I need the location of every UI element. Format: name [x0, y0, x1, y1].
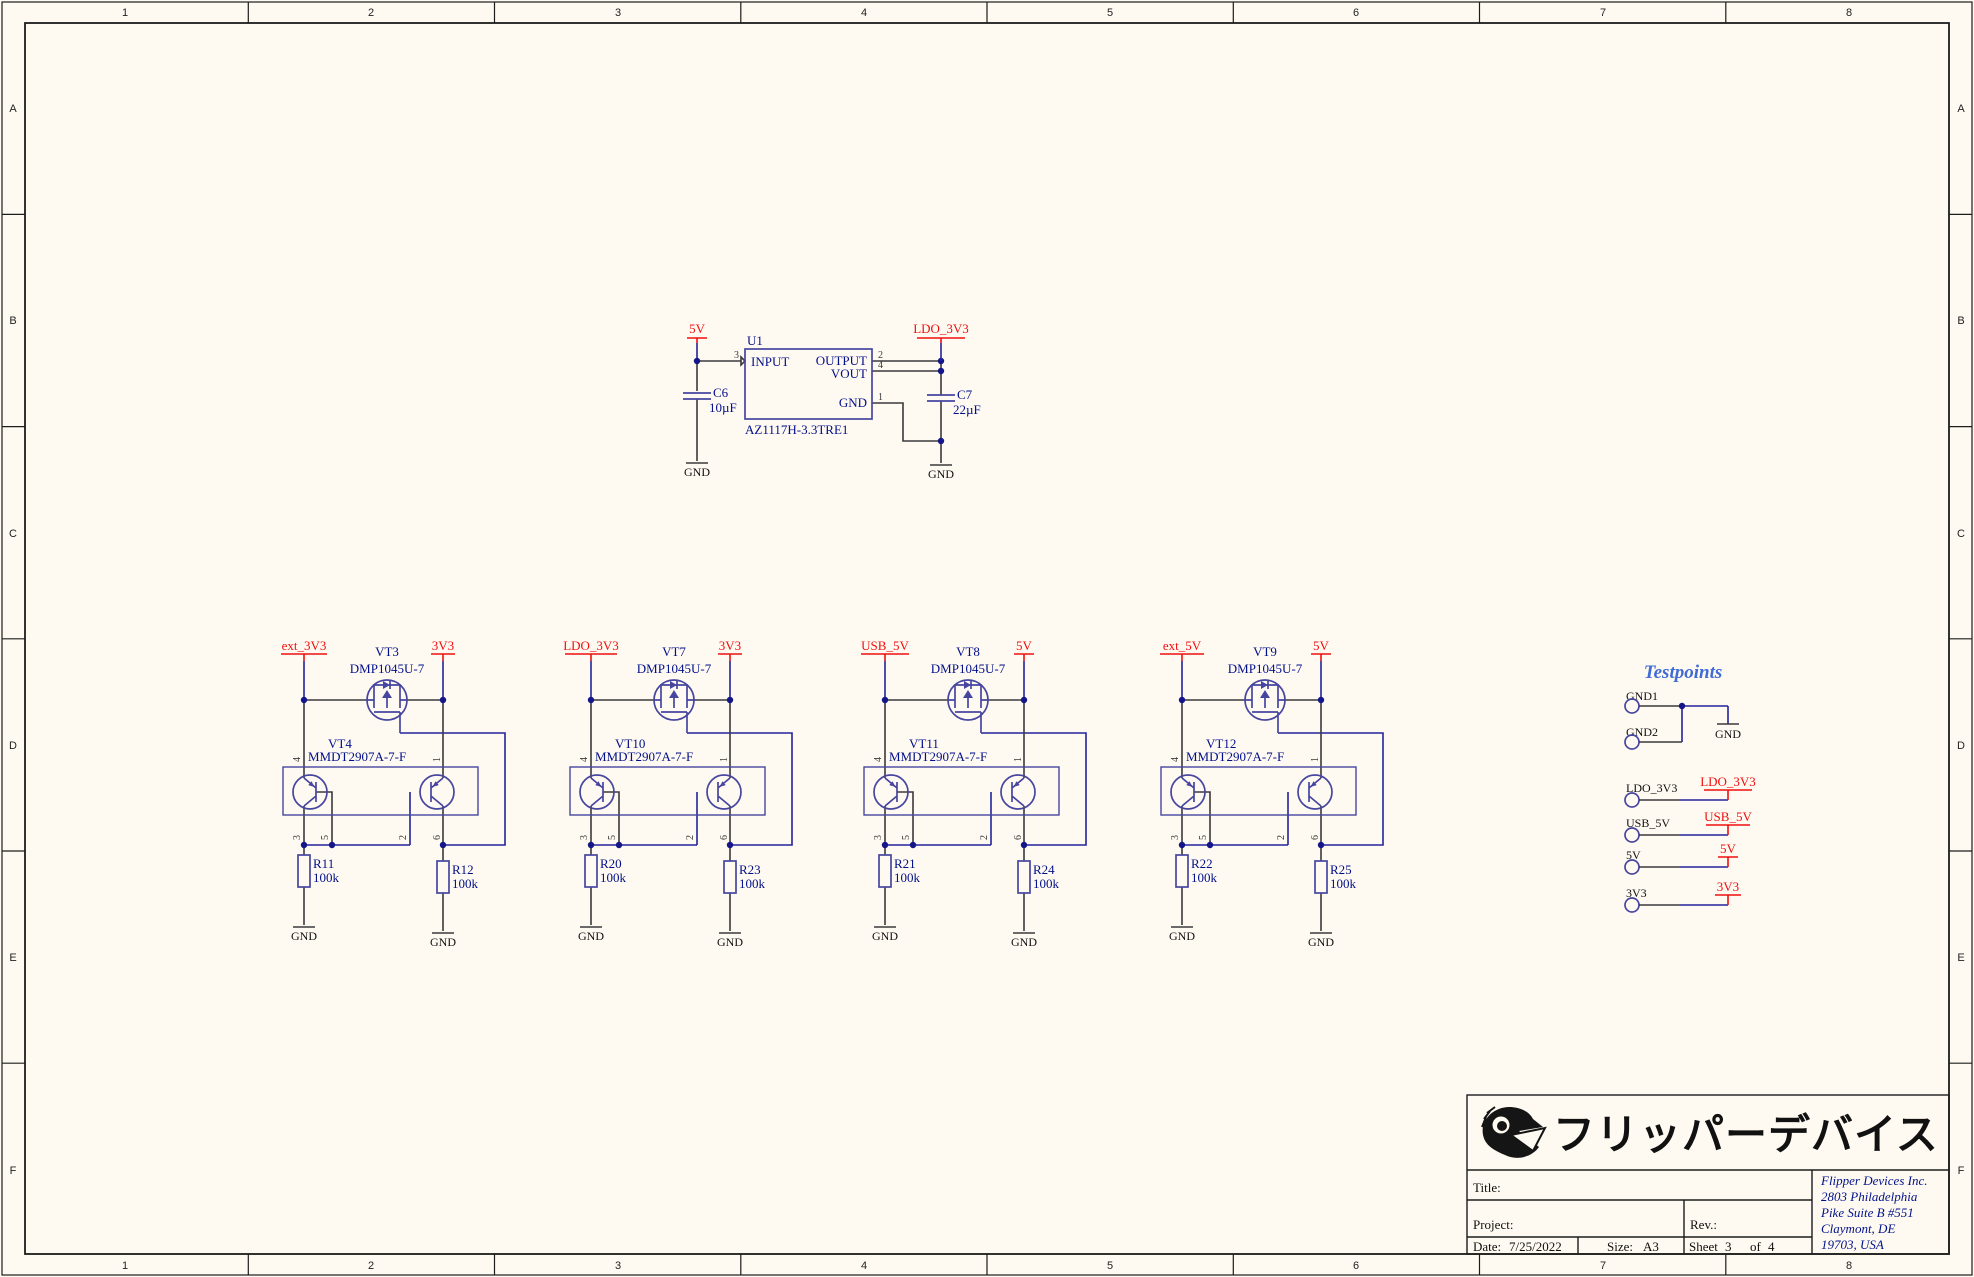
power-flag	[1715, 895, 1741, 905]
col-label: 2	[368, 7, 374, 19]
mosfet-arrow	[1260, 690, 1270, 698]
body-diode	[670, 681, 677, 689]
row-label: C	[1957, 528, 1965, 540]
row-labels-right: A B C D E F	[1957, 103, 1965, 1177]
bjt-left-symbol	[885, 778, 897, 806]
logo-text: フリッパーデバイス	[1553, 1111, 1939, 1158]
junction-dot	[329, 842, 335, 848]
resistor-ref: R12	[452, 862, 474, 877]
power-flag	[431, 654, 455, 661]
pin-number: 4	[579, 757, 590, 762]
junction-dot	[1318, 842, 1324, 848]
tp-row-3v3: 3V3 3V3	[1625, 879, 1741, 912]
gnd-label: GND	[684, 465, 710, 479]
power-flag	[1704, 790, 1752, 800]
resistor-value: 100k	[739, 876, 766, 891]
col-label: 5	[1107, 1260, 1113, 1272]
row-label: D	[1957, 740, 1965, 752]
row-label: B	[1957, 315, 1964, 327]
company-address: Flipper Devices Inc. 2803 Philadelphia P…	[1820, 1173, 1927, 1252]
resistor-left	[1176, 855, 1188, 887]
col-label: 6	[1353, 1260, 1359, 1272]
date-label: Date:	[1473, 1239, 1501, 1254]
power-flag	[1706, 825, 1750, 835]
pin-number: 1	[1013, 757, 1024, 762]
dual-bjt-body	[1161, 767, 1356, 815]
resistor-right	[437, 861, 449, 893]
net-label: 5V	[1016, 638, 1033, 653]
tp-row-usb5v: USB_5V USB_5V	[1625, 809, 1752, 842]
project-label: Project:	[1473, 1217, 1513, 1232]
col-label: 3	[615, 1260, 621, 1272]
mosfet-ref: VT9	[1253, 644, 1277, 659]
net-label: 5V	[1313, 638, 1330, 653]
column-ticks	[248, 2, 1726, 1275]
resistor-right	[1315, 861, 1327, 893]
pin-number: 4	[292, 757, 303, 762]
sheet-number: 3	[1725, 1239, 1732, 1254]
gnd-symbols	[293, 927, 454, 933]
dual-bjt-body	[283, 767, 478, 815]
address-line: 19703, USA	[1821, 1237, 1884, 1252]
junction-dot	[1679, 703, 1685, 709]
gnd-label: GND	[872, 929, 898, 943]
pin-number: 5	[1198, 835, 1209, 840]
pin-number: 2	[685, 835, 696, 840]
pin-number: 1	[878, 392, 883, 403]
pin-number: 3	[579, 835, 590, 840]
mosfet-arrow	[963, 690, 973, 698]
mosfet-part: DMP1045U-7	[931, 661, 1006, 676]
junction-dot	[1318, 697, 1324, 703]
tp-label: GND2	[1626, 725, 1658, 739]
col-label: 6	[1353, 7, 1359, 19]
dolphin-pupil	[1497, 1121, 1507, 1131]
gnd-symbols	[580, 927, 741, 933]
title-label: Title:	[1473, 1180, 1501, 1195]
net-label-5v: 5V	[689, 321, 706, 336]
mosfet-arrow	[382, 690, 392, 698]
flipper-dolphin-logo	[1482, 1107, 1545, 1158]
pin-number: 3	[292, 835, 303, 840]
bjt-part: MMDT2907A-7-F	[889, 749, 987, 764]
testpoints-section: Testpoints GND1 GND GND2 LDO_3V3 LDO_3V3…	[1625, 662, 1756, 912]
junction-dot	[301, 697, 307, 703]
row-label: F	[1958, 1165, 1965, 1177]
resistor-ref: R25	[1330, 862, 1352, 877]
mosfet-part: DMP1045U-7	[350, 661, 425, 676]
size-label: Size:	[1607, 1239, 1633, 1254]
col-label: 7	[1600, 1260, 1606, 1272]
testpoint-pad	[1625, 860, 1639, 874]
resistor-right	[1018, 861, 1030, 893]
bjt-left-symbol	[304, 778, 316, 806]
junction-dot	[727, 697, 733, 703]
power-flag	[917, 338, 965, 343]
pin-number: 6	[1310, 835, 1321, 840]
bjt-right-symbol	[1309, 778, 1321, 806]
resistor-ref: R20	[600, 856, 622, 871]
junction-dot	[1021, 842, 1027, 848]
of-label: of	[1750, 1239, 1762, 1254]
mosfet-part: DMP1045U-7	[1228, 661, 1303, 676]
resistor-left	[879, 855, 891, 887]
col-label: 1	[122, 1260, 128, 1272]
dual-bjt-body	[864, 767, 1059, 815]
bjt-right-symbol	[718, 778, 730, 806]
regulator-ref: U1	[747, 333, 763, 348]
power-switch-group-3: USB_5V 5V VT8 DMP1045U-7 VT11 MMDT2907A-…	[861, 638, 1086, 949]
net-label-ldo3v3: LDO_3V3	[913, 321, 969, 336]
col-label: 4	[861, 7, 867, 19]
bjt-part: MMDT2907A-7-F	[595, 749, 693, 764]
gnd-symbols	[874, 927, 1035, 933]
pin-name-gnd: GND	[839, 395, 867, 410]
junction-dot	[1179, 697, 1185, 703]
junction-dot	[616, 842, 622, 848]
address-line: Flipper Devices Inc.	[1820, 1173, 1927, 1188]
sheet-label: Sheet	[1689, 1239, 1718, 1254]
resistor-ref: R23	[739, 862, 761, 877]
gnd-label: GND	[430, 935, 456, 949]
regulator-part: AZ1117H-3.3TRE1	[745, 422, 848, 437]
gnd-symbols	[1171, 927, 1332, 933]
resistor-value: 100k	[600, 870, 627, 885]
resistor-ref: R24	[1033, 862, 1055, 877]
testpoint-pad	[1625, 793, 1639, 807]
bjt-right	[1001, 775, 1035, 809]
pin-name-vout: VOUT	[831, 366, 867, 381]
row-label: A	[1957, 103, 1965, 115]
rev-label: Rev.:	[1690, 1217, 1717, 1232]
pin-number: 2	[398, 835, 409, 840]
power-flag	[861, 654, 909, 661]
junction-dot	[1021, 697, 1027, 703]
sheet-total: 4	[1768, 1239, 1775, 1254]
junction-dot	[694, 358, 700, 364]
pin-number: 5	[901, 835, 912, 840]
tp-label: GND1	[1626, 689, 1658, 703]
size-value: A3	[1643, 1239, 1659, 1254]
row-labels-left: A B C D E F	[9, 103, 17, 1177]
power-switch-group-1: ext_3V3 3V3 VT3 DMP1045U-7 VT4 MMDT2907A…	[281, 638, 505, 949]
tp-row-5v: 5V 5V	[1625, 841, 1738, 874]
pin-number: 6	[719, 835, 730, 840]
mosfet-ref: VT3	[375, 644, 399, 659]
col-label: 2	[368, 1260, 374, 1272]
testpoint-pad	[1625, 828, 1639, 842]
pin-number: 6	[432, 835, 443, 840]
c6-value: 10µF	[709, 400, 737, 415]
gnd-label: GND	[1011, 935, 1037, 949]
power-flag	[1014, 654, 1034, 661]
resistor-value: 100k	[452, 876, 479, 891]
power-flag	[281, 654, 327, 661]
power-flag	[718, 654, 742, 661]
pin-number: 4	[878, 360, 883, 371]
row-label: E	[1957, 952, 1964, 964]
address-line: Pike Suite B #551	[1820, 1205, 1914, 1220]
bjt-part: MMDT2907A-7-F	[308, 749, 406, 764]
col-label: 3	[615, 7, 621, 19]
c7-value: 22µF	[953, 402, 981, 417]
gnd-label: GND	[1715, 727, 1741, 741]
pin-number: 1	[1310, 757, 1321, 762]
resistor-left	[298, 855, 310, 887]
pin-number: 1	[432, 757, 443, 762]
gnd-label: GND	[1169, 929, 1195, 943]
net-label: 5V	[1720, 841, 1737, 856]
junction-dot	[301, 842, 307, 848]
row-label: C	[9, 528, 17, 540]
col-label: 8	[1846, 1260, 1852, 1272]
resistor-value: 100k	[1033, 876, 1060, 891]
junction-dot	[938, 368, 944, 374]
mosfet-ref: VT8	[956, 644, 980, 659]
testpoints-title: Testpoints	[1644, 662, 1723, 683]
mosfet-ref: VT7	[662, 644, 686, 659]
mosfet-part: DMP1045U-7	[637, 661, 712, 676]
address-line: 2803 Philadelphia	[1821, 1189, 1918, 1204]
mosfet-internals	[1245, 681, 1285, 733]
bjt-right	[420, 775, 454, 809]
bjt-right-symbol	[431, 778, 443, 806]
power-switch-group-2: LDO_3V3 3V3 VT7 DMP1045U-7 VT10 MMDT2907…	[563, 638, 792, 949]
pin-number: 4	[873, 757, 884, 762]
capacitor-c6	[683, 393, 711, 399]
net-label: USB_5V	[861, 638, 909, 653]
junction-dot	[588, 697, 594, 703]
junction-dot	[882, 842, 888, 848]
bjt-right	[1298, 775, 1332, 809]
gnd-symbols	[686, 463, 952, 465]
col-label: 7	[1600, 7, 1606, 19]
pin-number: 2	[979, 835, 990, 840]
net-label: LDO_3V3	[1700, 774, 1756, 789]
net-label: ext_3V3	[282, 638, 327, 653]
gnd-label: GND	[928, 467, 954, 481]
c7-ref: C7	[957, 387, 973, 402]
bjt-part: MMDT2907A-7-F	[1186, 749, 1284, 764]
junction-dot	[588, 842, 594, 848]
junction-dot	[440, 842, 446, 848]
pin-number: 4	[1170, 757, 1181, 762]
gnd-label: GND	[717, 935, 743, 949]
col-label: 1	[122, 7, 128, 19]
junction-dot	[938, 438, 944, 444]
mosfet-internals	[948, 681, 988, 733]
bjt-right	[707, 775, 741, 809]
bjt-left-symbol	[1182, 778, 1194, 806]
net-label: USB_5V	[1704, 809, 1752, 824]
resistor-value: 100k	[1330, 876, 1357, 891]
resistor-ref: R11	[313, 856, 334, 871]
junction-dot	[1207, 842, 1213, 848]
tp-row-ldo3v3: LDO_3V3 LDO_3V3	[1625, 774, 1756, 807]
row-label: E	[9, 952, 16, 964]
resistor-ref: R22	[1191, 856, 1213, 871]
title-block: フリッパーデバイス Title: Project: Rev.: Date: 7/…	[1467, 1095, 1949, 1254]
junction-dot	[882, 697, 888, 703]
resistor-value: 100k	[894, 870, 921, 885]
mosfet-internals	[654, 681, 694, 733]
row-label: D	[9, 740, 17, 752]
power-flag	[1160, 654, 1204, 661]
testpoint-pad	[1625, 898, 1639, 912]
ldo-regulator-circuit: 5V U1 INPUT OUTPUT VOUT GND 3 2 4 1 AZ11…	[683, 321, 981, 481]
junction-dot	[1179, 842, 1185, 848]
pin-number: 3	[873, 835, 884, 840]
bjt-left-symbol	[591, 778, 603, 806]
pin-number: 2	[1276, 835, 1287, 840]
resistor-value: 100k	[1191, 870, 1218, 885]
body-diode	[383, 681, 390, 689]
net-label: 3V3	[1717, 879, 1739, 894]
mosfet-internals	[367, 681, 407, 733]
row-label: A	[9, 103, 17, 115]
date-value: 7/25/2022	[1509, 1239, 1562, 1254]
row-label: F	[10, 1165, 17, 1177]
power-flag	[1311, 654, 1331, 661]
net-label: ext_5V	[1163, 638, 1202, 653]
schematic-canvas: 1 2 3 4 5 6 7 8 1 2 3 4 5 6 7 8 A B C D …	[0, 0, 1974, 1277]
schematic-sheet: 1 2 3 4 5 6 7 8 1 2 3 4 5 6 7 8 A B C D …	[0, 0, 1974, 1277]
body-diode	[964, 681, 971, 689]
resistor-left	[585, 855, 597, 887]
col-label: 8	[1846, 7, 1852, 19]
junction-dot	[910, 842, 916, 848]
gnd-label: GND	[291, 929, 317, 943]
pin-number: 5	[320, 835, 331, 840]
body-diode	[1261, 681, 1268, 689]
resistor-ref: R21	[894, 856, 916, 871]
net-label: 3V3	[432, 638, 454, 653]
gnd-label: GND	[578, 929, 604, 943]
capacitor-c7	[927, 395, 955, 401]
gnd-label: GND	[1308, 935, 1334, 949]
bjt-right-symbol	[1012, 778, 1024, 806]
power-flag	[565, 654, 617, 661]
power-flag	[687, 338, 707, 343]
col-label: 4	[861, 1260, 867, 1272]
pin-number: 3	[734, 350, 739, 361]
mosfet-arrow	[669, 690, 679, 698]
pin-number: 1	[719, 757, 730, 762]
power-flag	[1718, 857, 1738, 867]
row-label: B	[9, 315, 16, 327]
resistor-value: 100k	[313, 870, 340, 885]
pin-number: 5	[607, 835, 618, 840]
c6-ref: C6	[713, 385, 729, 400]
net-label: LDO_3V3	[563, 638, 619, 653]
junction-dot	[440, 697, 446, 703]
pin-number: 3	[1170, 835, 1181, 840]
pin-name-input: INPUT	[751, 354, 789, 369]
junction-dot	[727, 842, 733, 848]
col-label: 5	[1107, 7, 1113, 19]
dual-bjt-body	[570, 767, 765, 815]
pin-number: 6	[1013, 835, 1024, 840]
net-label: 3V3	[719, 638, 741, 653]
address-line: Claymont, DE	[1821, 1221, 1895, 1236]
resistor-right	[724, 861, 736, 893]
power-switch-group-4: ext_5V 5V VT9 DMP1045U-7 VT12 MMDT2907A-…	[1160, 638, 1383, 949]
